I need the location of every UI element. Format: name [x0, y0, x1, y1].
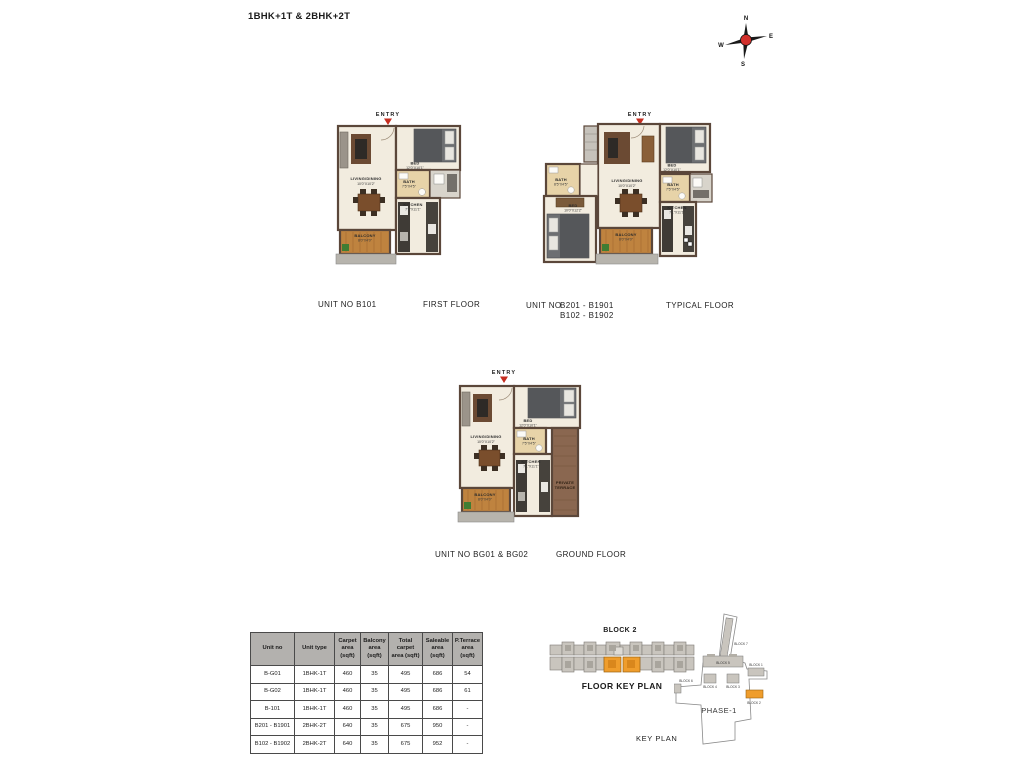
unit-numbers-typical-1: B201 - B1901	[560, 301, 614, 310]
cell: 675	[389, 718, 423, 736]
room-dims: 7'5"X4'5"	[402, 185, 417, 189]
room-label: LIVING/DINING	[470, 434, 501, 439]
room-living: LIVING/DINING 10'0"X10'2"	[598, 124, 660, 228]
private-terrace: PRIVATE TERRACE	[552, 428, 578, 516]
cell: 61	[453, 683, 483, 701]
col-header: Unit no	[251, 633, 295, 666]
room-label: KITCHEN	[403, 202, 422, 207]
plant-icon	[342, 244, 349, 251]
utility-area	[690, 174, 712, 202]
cell: 950	[423, 718, 453, 736]
unit-label-typical: UNIT NO	[526, 301, 562, 310]
table-row: B-G021BHK-1T4603549568661	[251, 683, 483, 701]
room-kitchen: KITCHEN 7'1"X11'1"	[660, 202, 696, 256]
room-label: BATH	[555, 177, 567, 182]
col-header: Unit type	[295, 633, 335, 666]
room-label: LIVING/DINING	[350, 176, 381, 181]
room-label: BED	[523, 418, 532, 423]
compass-s-label: S	[741, 62, 745, 68]
room-dims: 12'0"X10'1"	[663, 168, 682, 172]
building-footprint	[550, 642, 694, 672]
cell: B201 - B1901	[251, 718, 295, 736]
unit-numbers-typical-2: B102 - B1902	[560, 311, 614, 320]
room-bed1: BED 12'0"X10'1"	[660, 124, 710, 172]
room-label: KITCHEN	[521, 459, 540, 464]
room-label: BALCONY	[354, 233, 375, 238]
compass-icon: N E W S	[716, 12, 776, 68]
col-header: Carpet area (sqft)	[335, 633, 361, 666]
room-dims: 8'0"X4'0"	[619, 238, 634, 242]
cell: 460	[335, 666, 361, 684]
cell: B-101	[251, 701, 295, 719]
room-living: LIVING/DINING 10'0"X10'2"	[338, 126, 396, 230]
floor-label-typical: TYPICAL FLOOR	[666, 301, 734, 310]
room-bath: BATH 7'5"X4'5"	[514, 428, 546, 454]
cell: 2BHK-2T	[295, 736, 335, 754]
room-dims: 10'0"X10'2"	[618, 184, 637, 188]
room-bed: BED 12'0"X10'1"	[396, 126, 460, 170]
room-dims: 8'0"X4'0"	[478, 498, 493, 502]
cell: 54	[453, 666, 483, 684]
corridor	[580, 164, 598, 196]
room-balcony: BALCONY 8'0"X4'0"	[340, 230, 390, 254]
cell: 1BHK-1T	[295, 701, 335, 719]
table-row: B-1011BHK-1T46035495686-	[251, 701, 483, 719]
block-2-highlight	[746, 690, 763, 698]
floor-label-ground: GROUND FLOOR	[556, 550, 626, 559]
cell: -	[453, 701, 483, 719]
room-dims: 8'0"X4'0"	[358, 239, 373, 243]
entry-label-typical: ENTRY	[628, 112, 652, 118]
room-dims: 7'1"X11'1"	[405, 208, 421, 212]
plant-icon	[602, 244, 609, 251]
room-dims: 7'1"X11'1"	[523, 465, 539, 469]
room-balcony: BALCONY 8'0"X4'0"	[600, 228, 652, 254]
cell: 35	[361, 736, 389, 754]
table-header-row: Unit no Unit type Carpet area (sqft) Bal…	[251, 633, 483, 666]
page-title: 1BHK+1T & 2BHK+2T	[248, 11, 350, 22]
terrace-step	[458, 512, 514, 522]
cell: 686	[423, 701, 453, 719]
floor-plan-typical: ENTRY LIVING/DINING 10'0"X10'2" BED 12'0…	[540, 106, 718, 270]
cell: 1BHK-1T	[295, 666, 335, 684]
room-label: BATH	[523, 436, 535, 441]
compass-n-label: N	[744, 16, 748, 22]
room-bath2: BATH 7'5"X4'5"	[660, 174, 690, 202]
col-header: Total carpet area (sqft)	[389, 633, 423, 666]
floor-label-first: FIRST FLOOR	[423, 300, 480, 309]
room-dims: 8'5"X4'5"	[554, 183, 569, 187]
area-table: Unit no Unit type Carpet area (sqft) Bal…	[250, 632, 483, 754]
terrace-step	[336, 254, 396, 264]
entry-label-ground: ENTRY	[492, 370, 516, 376]
room-kitchen: KITCHEN 7'1"X11'1"	[396, 198, 440, 254]
cell: 686	[423, 666, 453, 684]
room-dims: 10'0"X12'2"	[564, 209, 583, 213]
cell: 675	[389, 736, 423, 754]
room-bed: BED 12'0"X10'1"	[514, 386, 580, 428]
key-plan-caption: KEY PLAN	[636, 734, 716, 743]
room-dims: 10'0"X10'2"	[357, 182, 376, 186]
entry-label-first: ENTRY	[376, 112, 400, 118]
highlighted-units	[604, 657, 640, 672]
block-4-label: BLOCK 4	[703, 685, 717, 689]
col-header: P.Terrace area (sqft)	[453, 633, 483, 666]
room-kitchen: KITCHEN 7'1"X11'1"	[514, 454, 552, 516]
cell: 495	[389, 683, 423, 701]
room-dims: 7'5"X4'5"	[522, 442, 537, 446]
phase-label: PHASE-1	[701, 706, 737, 715]
unit-label-first: UNIT NO B101	[318, 300, 376, 309]
cell: 640	[335, 718, 361, 736]
room-dims: 7'1"X11'1"	[669, 211, 685, 215]
room-label: BED	[667, 163, 676, 168]
col-header: Balcony area (sqft)	[361, 633, 389, 666]
cell: 35	[361, 718, 389, 736]
room-dims: 10'0"X10'2"	[477, 440, 496, 444]
floor-plan-ground: ENTRY LIVING/DINING 10'0"X10'2" BED 12'0…	[452, 364, 584, 534]
terrace-step	[596, 254, 658, 264]
table-row: B201 - B19012BHK-2T64035675950-	[251, 718, 483, 736]
room-dims: 7'5"X4'5"	[666, 188, 681, 192]
cell: 35	[361, 701, 389, 719]
unit-label-ground: UNIT NO BG01 & BG02	[435, 550, 528, 559]
floor-plan-sheet: { "page": { "title": "1BHK+1T & 2BHK+2T"…	[0, 0, 1024, 768]
room-label: BED	[568, 203, 577, 208]
cell: 2BHK-2T	[295, 718, 335, 736]
cell: 460	[335, 701, 361, 719]
cell: 952	[423, 736, 453, 754]
block-6-label: BLOCK 6	[679, 679, 693, 683]
col-header: Saleable area (sqft)	[423, 633, 453, 666]
room-label: BATH	[667, 182, 679, 187]
entry-arrow-icon	[500, 377, 508, 384]
room-label: BALCONY	[615, 232, 636, 237]
cell: 35	[361, 683, 389, 701]
cell: 495	[389, 666, 423, 684]
table-row: B102 - B19022BHK-2T64035675952-	[251, 736, 483, 754]
compass-e-label: E	[769, 34, 773, 40]
table-row: B-G011BHK-1T4603549568654	[251, 666, 483, 684]
room-balcony: BALCONY 8'0"X4'0"	[462, 488, 510, 512]
block-2-label: BLOCK 2	[747, 701, 761, 705]
floor-key-plan-block-label: BLOCK 2	[570, 627, 670, 634]
block-5-label: BLOCK 5	[716, 661, 730, 665]
cell: -	[453, 736, 483, 754]
entry-arrow-icon	[384, 119, 392, 126]
cell: -	[453, 718, 483, 736]
block-3-label: BLOCK 3	[726, 685, 740, 689]
room-living: LIVING/DINING 10'0"X10'2"	[460, 386, 514, 488]
room-label: BALCONY	[474, 492, 495, 497]
floor-plan-first: ENTRY LIVING/DINING 10'0"X10'2" BED 12'0…	[328, 106, 468, 268]
cell: 640	[335, 736, 361, 754]
room-label: KITCHEN	[667, 205, 686, 210]
compass-w-label: W	[718, 43, 724, 49]
room-bath: BATH 7'5"X4'5"	[396, 170, 430, 198]
cell: 1BHK-1T	[295, 683, 335, 701]
cell: 35	[361, 666, 389, 684]
room-bed2: BED 10'0"X12'2"	[544, 196, 596, 262]
utility-area	[430, 170, 460, 198]
cell: B102 - B1902	[251, 736, 295, 754]
room-bath1: BATH 8'5"X4'5"	[546, 164, 580, 196]
block-7-label: BLOCK 7	[734, 642, 748, 646]
room-label: BATH	[403, 179, 415, 184]
cell: 495	[389, 701, 423, 719]
plant-icon	[464, 502, 471, 509]
cell: B-G02	[251, 683, 295, 701]
cell: 686	[423, 683, 453, 701]
cell: 460	[335, 683, 361, 701]
room-label: TERRACE	[555, 485, 576, 490]
room-label: LIVING/DINING	[611, 178, 642, 183]
room-label: BED	[410, 161, 419, 166]
room-dims: 12'0"X10'1"	[519, 424, 538, 428]
cell: B-G01	[251, 666, 295, 684]
stair-core	[584, 126, 598, 162]
block-1-label: BLOCK 1	[749, 663, 763, 667]
